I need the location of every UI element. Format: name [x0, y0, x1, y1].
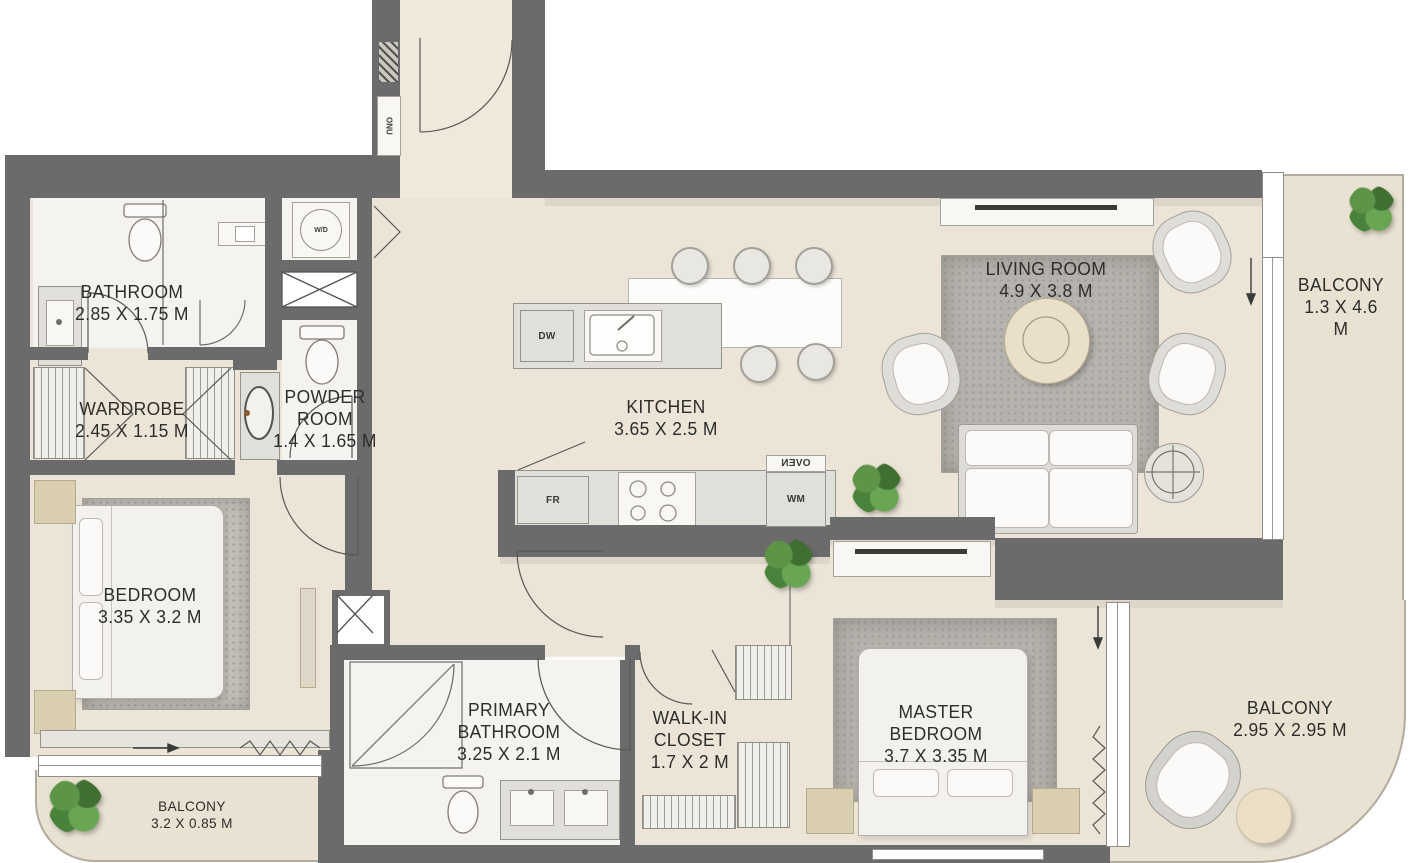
room-name: WALK-IN CLOSET: [651, 708, 729, 752]
room-label-powder-room: POWDER ROOM 1.4 X 1.65 M: [273, 387, 377, 453]
room-name: BALCONY: [151, 798, 233, 815]
coffee-table: [1004, 298, 1090, 384]
wardrobe-cabinet: [185, 367, 235, 459]
room-dims: 1.4 X 1.65 M: [273, 431, 377, 453]
closet-cabinet: [735, 645, 792, 700]
master-bottom-window: [872, 849, 1044, 860]
dining-chair: [740, 345, 778, 383]
nightstand: [1032, 788, 1080, 834]
oven-label: OVEN: [781, 458, 811, 469]
floor-plan: DW FR WM OVEN: [0, 0, 1409, 863]
wall-bathroom-right: [265, 198, 282, 360]
dining-chair: [797, 343, 835, 381]
sofa-back-cushion: [1049, 430, 1133, 466]
wall-bedroom-top-b: [277, 460, 372, 475]
dining-chair: [733, 247, 771, 285]
room-dims: 2.45 X 1.15 M: [75, 421, 189, 443]
washing-machine: WM: [766, 472, 826, 527]
room-name: BALCONY: [1298, 275, 1384, 297]
dining-chair: [795, 247, 833, 285]
wall-under-bathroom-a: [30, 347, 88, 360]
wall-powder-vanity: [233, 358, 277, 370]
room-label-living-room: LIVING ROOM 4.9 X 3.8 M: [986, 259, 1107, 303]
washer-dryer: W/D: [292, 202, 350, 258]
room-dims: 1.3 X 4.6 M: [1298, 297, 1384, 341]
wall-primary-bath-top-stub: [625, 645, 640, 660]
nightstand: [34, 690, 76, 734]
wall-above-powder: [277, 307, 357, 320]
room-name: KITCHEN: [614, 397, 718, 419]
armchair-cushion: [1152, 337, 1222, 411]
living-window: [1262, 257, 1284, 540]
closet-cabinet: [642, 795, 736, 829]
vanity-sink: [510, 790, 554, 826]
window-mullion: [1117, 603, 1118, 846]
onu-label: ONU: [385, 117, 394, 135]
wall-shadow: [545, 198, 1262, 206]
pouf-table: [1236, 788, 1292, 844]
wall-top-left: [5, 155, 372, 198]
wall-shadow: [995, 600, 1283, 608]
wall-top: [545, 170, 1262, 198]
vanity-sink: [564, 790, 608, 826]
wall-bath-closet-divider: [620, 660, 635, 845]
room-dims: 3.35 X 3.2 M: [98, 607, 202, 629]
room-label-walk-in-closet: WALK-IN CLOSET 1.7 X 2 M: [651, 708, 729, 774]
room-label-primary-bathroom: PRIMARY BATHROOM 3.25 X 2.1 M: [457, 700, 561, 766]
bedroom-dresser: [40, 730, 330, 748]
room-name: BEDROOM: [98, 585, 202, 607]
room-dims: 4.9 X 3.8 M: [986, 281, 1107, 303]
living-balcony-door: [1262, 172, 1284, 259]
nightstand: [34, 480, 76, 524]
dishwasher-label: DW: [538, 331, 555, 342]
tv-master: [855, 549, 967, 554]
room-label-wardrobe: WARDROBE 2.45 X 1.15 M: [75, 399, 189, 443]
washer-dryer-drum: W/D: [300, 209, 342, 251]
master-balcony-slider: [1106, 602, 1130, 847]
stove: [618, 472, 696, 527]
room-name: LIVING ROOM: [986, 259, 1107, 281]
wall-under-wd: [277, 260, 357, 272]
room-label-kitchen: KITCHEN 3.65 X 2.5 M: [614, 397, 718, 441]
wall-living-bottom: [830, 517, 995, 540]
room-label-master-bedroom: MASTER BEDROOM 3.7 X 3.35 M: [884, 702, 988, 768]
tv-console-master: [833, 541, 991, 577]
washing-machine-label: WM: [787, 494, 805, 505]
room-dims: 3.25 X 2.1 M: [457, 744, 561, 766]
room-name: WARDROBE: [75, 399, 189, 421]
sofa-back-cushion: [965, 430, 1049, 466]
wall-bedroom-top-a: [5, 460, 235, 475]
room-name: BALCONY: [1233, 698, 1347, 720]
bed-pillow: [873, 769, 939, 797]
entry-riser: [379, 42, 398, 82]
room-dims: 3.2 X 0.85 M: [151, 815, 233, 832]
window-mullion: [1272, 258, 1273, 539]
fridge: FR: [517, 476, 589, 524]
bed-pillow: [947, 769, 1013, 797]
wall-entry-right: [512, 0, 545, 198]
vanity-sink: [46, 300, 74, 346]
plant: [1348, 185, 1396, 233]
room-label-bathroom: BATHROOM 2.85 X 1.75 M: [75, 282, 189, 326]
side-table: [1144, 443, 1204, 503]
onu-unit: ONU: [377, 96, 401, 156]
bathroom-niche: [218, 222, 272, 246]
room-dims: 3.65 X 2.5 M: [614, 419, 718, 441]
hallway-floor: [500, 557, 790, 657]
room-label-balcony-right: BALCONY 1.3 X 4.6 M: [1298, 275, 1384, 341]
room-dims: 2.85 X 1.75 M: [75, 304, 189, 326]
bedroom-window: [38, 755, 322, 777]
oven: OVEN: [766, 455, 826, 472]
closet-cabinet: [737, 742, 790, 828]
room-label-balcony-bottom-right: BALCONY 2.95 X 2.95 M: [1233, 698, 1347, 742]
armchair-cushion: [887, 338, 955, 410]
wall-master-divider: [995, 538, 1283, 600]
room-dims: 2.95 X 2.95 M: [1233, 720, 1347, 742]
washer-dryer-label: W/D: [314, 227, 328, 234]
bedroom-mirror: [300, 588, 316, 688]
window-mullion: [39, 765, 321, 766]
niche-box: [235, 226, 255, 242]
balcony-right-floor: [1282, 174, 1404, 606]
sofa-seat-cushion: [1049, 468, 1133, 528]
balcony-corner-floor: [1283, 560, 1402, 604]
armchair-cushion: [1155, 213, 1229, 290]
room-dims: 3.7 X 3.35 M: [884, 746, 988, 768]
room-dims: 1.7 X 2 M: [651, 752, 729, 774]
room-name: PRIMARY BATHROOM: [457, 700, 561, 744]
room-name: BATHROOM: [75, 282, 189, 304]
wall-left-outer: [5, 155, 30, 757]
kitchen-sink-counter: [584, 310, 662, 362]
shaft-box: [332, 590, 390, 650]
plant: [48, 778, 104, 834]
entry-hall-floor: [400, 0, 512, 198]
plant: [763, 538, 815, 590]
dishwasher: DW: [520, 310, 574, 362]
dining-chair: [671, 247, 709, 285]
plant: [851, 462, 903, 514]
wall-corridor-right: [345, 475, 372, 592]
nightstand: [806, 788, 854, 834]
room-name: POWDER ROOM: [273, 387, 377, 431]
room-label-bedroom: BEDROOM 3.35 X 3.2 M: [98, 585, 202, 629]
fridge-label: FR: [546, 495, 560, 506]
room-label-balcony-bottom-left: BALCONY 3.2 X 0.85 M: [151, 798, 233, 832]
corridor-floor: [372, 557, 500, 647]
tv-living: [975, 205, 1117, 210]
room-name: MASTER BEDROOM: [884, 702, 988, 746]
tv-console-living: [940, 198, 1154, 226]
